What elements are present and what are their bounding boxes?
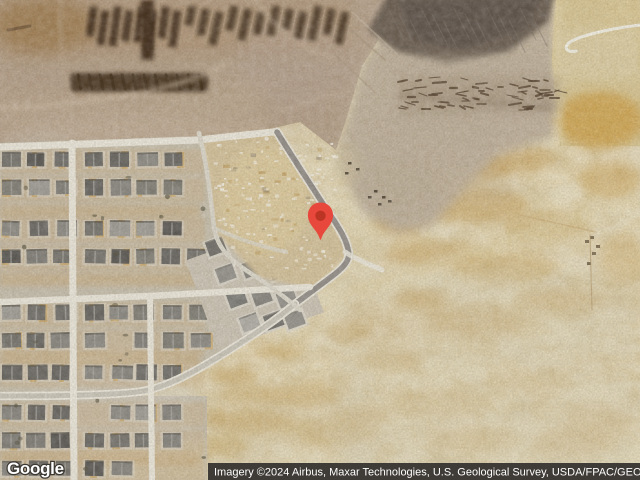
svg-text:Google: Google: [7, 459, 64, 478]
svg-text:Imagery ©2024 Airbus, Maxar Te: Imagery ©2024 Airbus, Maxar Technologies…: [214, 467, 640, 479]
